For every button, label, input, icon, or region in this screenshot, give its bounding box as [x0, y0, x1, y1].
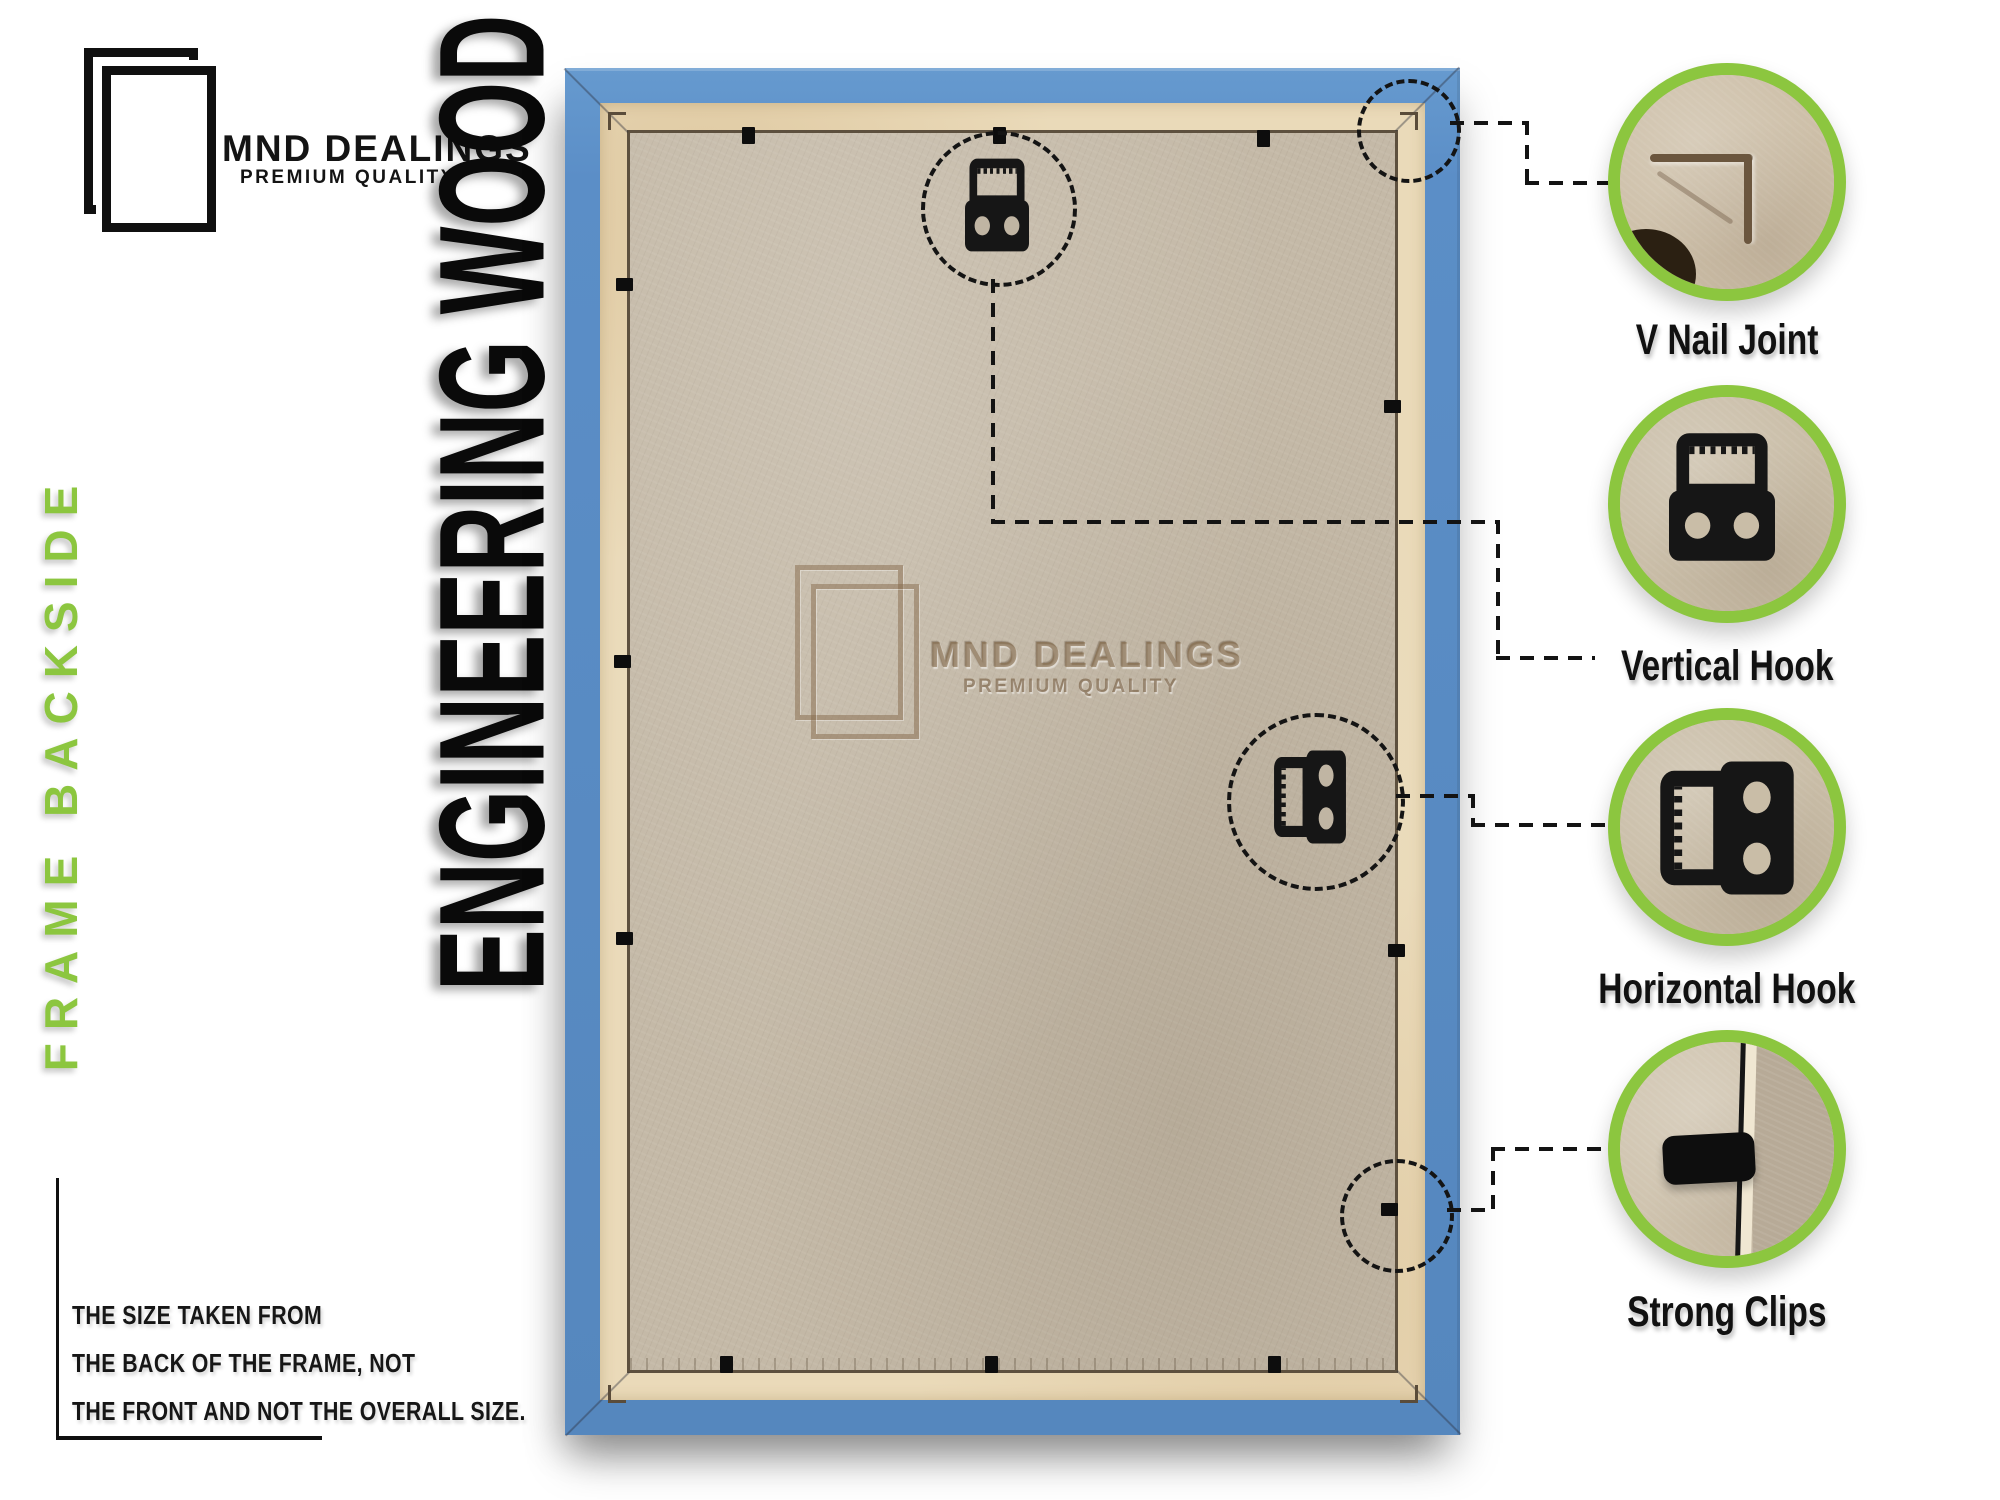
vertical-hook-highlight-circle: [921, 131, 1077, 287]
retaining-clip: [1257, 130, 1270, 147]
leader-line-vertical-hook: [991, 520, 1500, 524]
screw-hole: [1743, 843, 1771, 875]
leader-line-horizontal-hook: [1396, 794, 1475, 798]
retaining-clip: [1268, 1356, 1281, 1373]
leader-line-vertical-hook: [991, 279, 995, 522]
frame-backside-label: FRAME BACKSIDE: [29, 405, 93, 1139]
size-note-line-3: THE FRONT AND NOT THE OVERALL SIZE.: [72, 1396, 425, 1427]
vertical-hook-hardware-large: [1669, 433, 1775, 561]
callout-label-text: Strong Clips: [1627, 1288, 1826, 1337]
leader-line-strong-clips: [1447, 1208, 1495, 1212]
vertical-hook-photo: [1620, 397, 1834, 611]
callout-label-horizontal-hook: Horizontal Hook: [1527, 965, 1927, 1014]
strong-clip-highlight-circle: [1340, 1159, 1454, 1273]
size-note: THE SIZE TAKEN FROM THE BACK OF THE FRAM…: [72, 1300, 502, 1444]
leader-line-v-nail: [1450, 121, 1527, 125]
size-note-line-2: THE BACK OF THE FRAME, NOT: [72, 1348, 425, 1379]
watermark-frame-icon: [811, 584, 919, 739]
corner-mark-icon: [608, 112, 626, 130]
watermark-brand-tagline: PREMIUM QUALITY: [963, 676, 1179, 698]
hook-body: [1660, 762, 1793, 895]
wood-crack: [1656, 170, 1733, 224]
miter-joint-line: [565, 1371, 630, 1436]
hook-ring: [1660, 771, 1727, 885]
retaining-clip: [616, 278, 633, 291]
horizontal-hook-hardware-large: [1660, 762, 1793, 895]
corner-mark-icon: [608, 1385, 626, 1403]
leader-line-v-nail: [1525, 121, 1529, 183]
v-nail-groove: [1650, 154, 1753, 162]
retaining-clip: [720, 1356, 733, 1373]
frame-edge-wood: [1753, 1042, 1834, 1256]
retaining-clip: [742, 127, 755, 144]
v-nail-groove: [1744, 154, 1752, 244]
corner-shadow: [1608, 229, 1696, 301]
callout-label-text: Vertical Hook: [1621, 642, 1834, 691]
screw-hole: [1743, 781, 1771, 813]
engineering-wood-label: ENGINEERING WOOD: [415, 241, 570, 1291]
callout-label-vertical-hook: Vertical Hook: [1527, 642, 1927, 691]
watermark-brand-name: MND DEALINGS: [930, 634, 1244, 676]
hook-plate: [1669, 490, 1775, 560]
callout-label-text: V Nail Joint: [1636, 316, 1819, 365]
hook-plate: [1720, 762, 1794, 895]
leader-line-v-nail: [1525, 181, 1610, 185]
leader-line-vertical-hook: [1496, 520, 1500, 660]
callout-circle-v-nail-joint: [1608, 63, 1846, 301]
strong-clips-photo: [1620, 1042, 1834, 1256]
retaining-clip: [614, 655, 631, 668]
callout-circle-strong-clips: [1608, 1030, 1846, 1268]
leader-line-strong-clips: [1491, 1147, 1495, 1212]
hook-body: [1669, 433, 1775, 561]
callout-label-v-nail-joint: V Nail Joint: [1527, 316, 1927, 365]
callout-label-text: Horizontal Hook: [1598, 965, 1855, 1014]
retaining-clip: [985, 1356, 998, 1373]
frame-backside-infographic: MND DEALINGS PREMIUM QUALITY FRAME BACKS…: [0, 0, 2000, 1500]
horizontal-hook-highlight-circle: [1227, 713, 1405, 891]
retaining-clip: [616, 932, 633, 945]
note-bracket-vertical-line: [56, 1178, 59, 1438]
screw-hole: [1734, 512, 1759, 538]
retaining-clip: [1388, 944, 1405, 957]
picture-frame-back: MND DEALINGS PREMIUM QUALITY: [565, 68, 1460, 1435]
leader-line-horizontal-hook: [1471, 823, 1606, 827]
strong-clip-tab: [1662, 1132, 1756, 1186]
engineering-wood-text: ENGINEERING WOOD: [415, 15, 570, 992]
callout-circle-vertical-hook: [1608, 385, 1846, 623]
hook-ring: [1676, 433, 1767, 497]
corner-joint-highlight-circle: [1357, 79, 1461, 183]
frame-outline-front-icon: [102, 66, 216, 232]
horizontal-hook-photo: [1620, 720, 1834, 934]
callout-label-strong-clips: Strong Clips: [1527, 1288, 1927, 1337]
v-nail-joint-photo: [1620, 75, 1834, 289]
leader-line-strong-clips: [1491, 1147, 1606, 1151]
corner-mark-icon: [1400, 1385, 1418, 1403]
screw-hole: [1685, 512, 1710, 538]
retaining-clip: [1384, 400, 1401, 413]
callout-circle-horizontal-hook: [1608, 708, 1846, 946]
size-note-line-1: THE SIZE TAKEN FROM: [72, 1300, 425, 1331]
